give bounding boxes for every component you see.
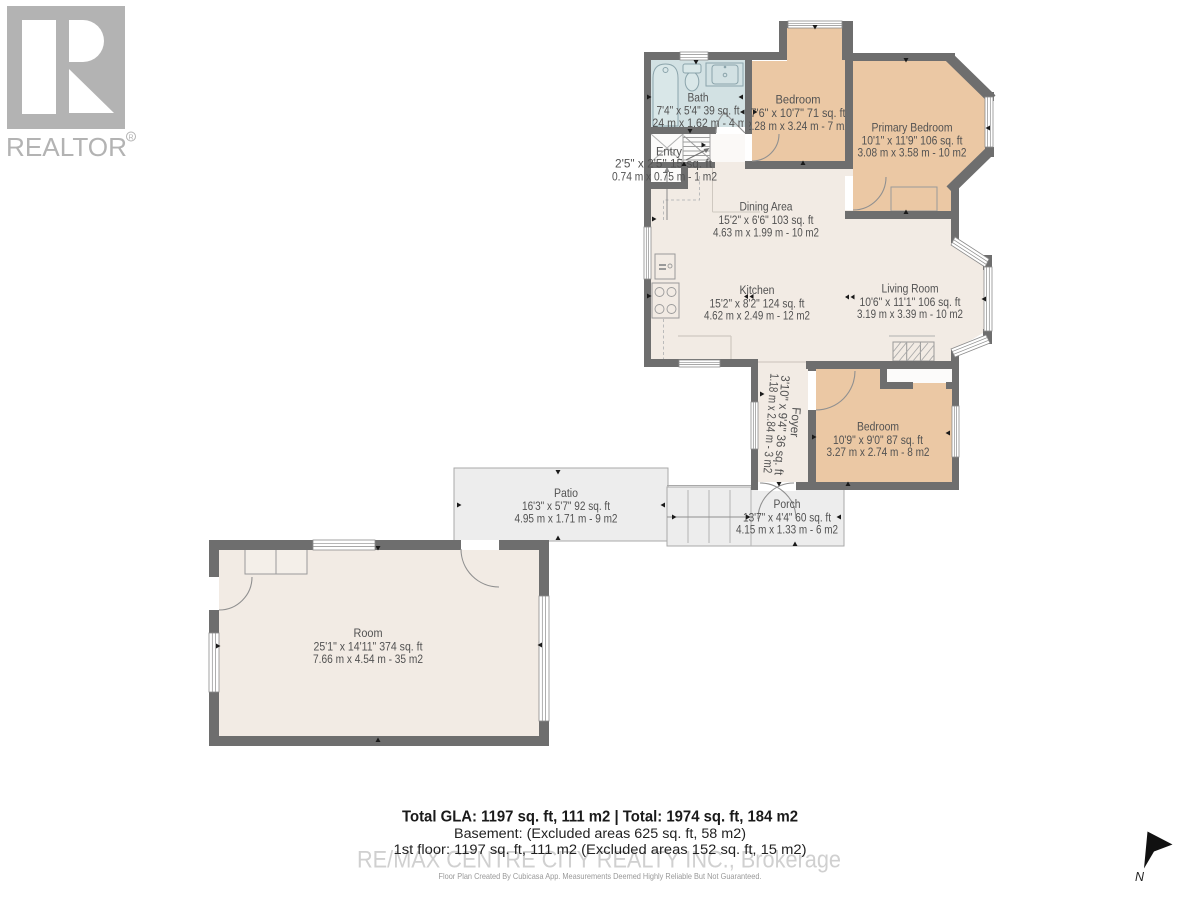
svg-text:Living Room: Living Room bbox=[882, 282, 939, 296]
svg-text:Porch: Porch bbox=[774, 497, 801, 511]
svg-text:Basement: (Excluded areas 625: Basement: (Excluded areas 625 sq. ft, 58… bbox=[454, 826, 746, 841]
svg-text:2'5" x 2'5" 15 sq. ft: 2'5" x 2'5" 15 sq. ft bbox=[615, 157, 713, 171]
svg-text:N: N bbox=[1135, 870, 1145, 884]
svg-text:Bedroom: Bedroom bbox=[857, 420, 899, 434]
svg-text:Room: Room bbox=[354, 626, 383, 640]
svg-text:Kitchen: Kitchen bbox=[740, 283, 775, 297]
svg-text:7.66 m x 4.54 m - 35 m2: 7.66 m x 4.54 m - 35 m2 bbox=[313, 652, 423, 666]
svg-text:Patio: Patio bbox=[554, 486, 578, 500]
svg-text:4.95 m x 1.71 m - 9 m2: 4.95 m x 1.71 m - 9 m2 bbox=[515, 512, 618, 526]
svg-text:2.24 m x 1.62 m - 4 m2: 2.24 m x 1.62 m - 4 m2 bbox=[644, 116, 753, 130]
svg-text:REALTOR: REALTOR bbox=[6, 132, 127, 162]
svg-text:3.19 m x 3.39 m - 10 m2: 3.19 m x 3.39 m - 10 m2 bbox=[857, 307, 963, 321]
svg-text:7'6" x 10'7" 71 sq. ft: 7'6" x 10'7" 71 sq. ft bbox=[751, 106, 847, 120]
svg-text:3.27 m x 2.74 m - 8 m2: 3.27 m x 2.74 m - 8 m2 bbox=[827, 445, 930, 459]
svg-text:Floor Plan Created By Cubicasa: Floor Plan Created By Cubicasa App. Meas… bbox=[439, 871, 762, 881]
svg-text:4.15 m x 1.33 m - 6 m2: 4.15 m x 1.33 m - 6 m2 bbox=[736, 523, 838, 537]
svg-text:2.28 m x 3.24 m - 7 m2: 2.28 m x 3.24 m - 7 m2 bbox=[746, 119, 850, 133]
svg-text:Dining Area: Dining Area bbox=[740, 200, 793, 214]
svg-text:1st floor: 1197 sq. ft, 111 m2: 1st floor: 1197 sq. ft, 111 m2 (Excluded… bbox=[394, 842, 807, 857]
svg-text:4.63 m x 1.99 m - 10 m2: 4.63 m x 1.99 m - 10 m2 bbox=[713, 226, 819, 240]
svg-text:3.08 m x 3.58 m - 10 m2: 3.08 m x 3.58 m - 10 m2 bbox=[858, 146, 967, 160]
svg-text:Bedroom: Bedroom bbox=[776, 93, 821, 107]
svg-text:Total GLA: 1197 sq. ft, 111 m2: Total GLA: 1197 sq. ft, 111 m2 | Total: … bbox=[402, 809, 798, 826]
svg-text:4.62 m x 2.49 m - 12 m2: 4.62 m x 2.49 m - 12 m2 bbox=[704, 309, 810, 323]
svg-text:Bath: Bath bbox=[688, 91, 709, 105]
svg-text:Primary Bedroom: Primary Bedroom bbox=[872, 121, 953, 135]
svg-text:R: R bbox=[128, 135, 133, 142]
svg-text:0.74 m x 0.75 m - 1 m2: 0.74 m x 0.75 m - 1 m2 bbox=[612, 170, 717, 184]
